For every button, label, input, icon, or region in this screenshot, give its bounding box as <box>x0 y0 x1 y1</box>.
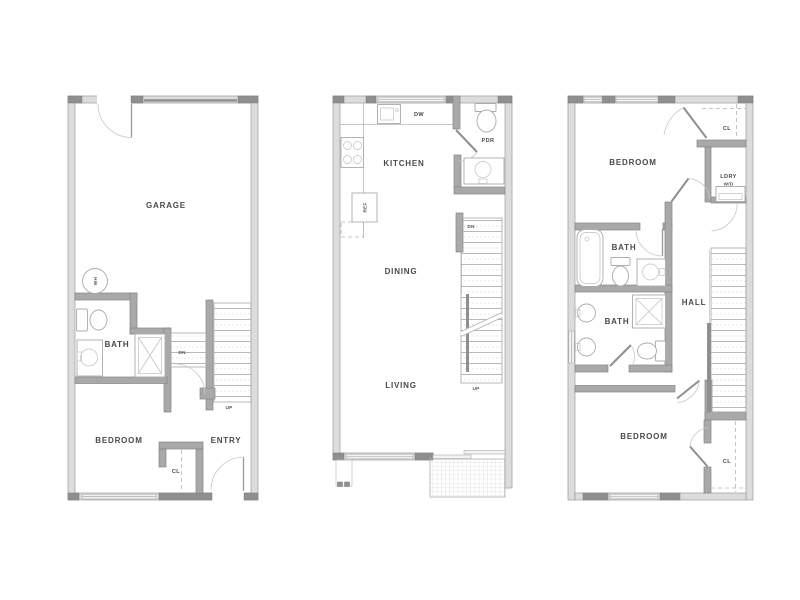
powder-room <box>453 96 505 194</box>
living-label: LIVING <box>385 381 416 390</box>
sink-vanity-upper-fixture <box>637 259 666 286</box>
garage-label: GARAGE <box>146 201 186 210</box>
water-heater: WH <box>83 269 108 294</box>
laundry-label: LDRY <box>720 174 737 180</box>
toilet-fixture <box>77 309 108 331</box>
bath-upper-label: BATH <box>612 243 637 252</box>
stairs-up-label: UP <box>225 405 233 411</box>
closet-upper-dashed <box>702 104 746 139</box>
closet-label: CL <box>172 469 180 475</box>
kitchen-sink <box>378 105 401 124</box>
stairs-down-label: DN <box>178 350 186 356</box>
water-heater-label: WH <box>93 276 99 285</box>
dishwasher-label: DW <box>414 112 424 118</box>
bath-label: BATH <box>105 340 130 349</box>
floor2-stairs <box>456 213 502 383</box>
cooktop <box>341 138 364 168</box>
entry-label: ENTRY <box>211 436 242 445</box>
hall-label: HALL <box>682 298 707 307</box>
powder-room-label: PDR <box>481 138 494 144</box>
dining-label: DINING <box>385 267 418 276</box>
bedroom-upper-label: BEDROOM <box>609 158 656 167</box>
stairs-up-label: UP <box>472 386 480 392</box>
floor2-plan: REF DW KITCHEN PDR DINING <box>333 96 512 497</box>
stairs-down-label: DN <box>467 224 475 230</box>
sliding-door <box>433 455 471 459</box>
toilet-lower-fixture <box>638 341 666 361</box>
kitchen-label: KITCHEN <box>383 159 424 168</box>
closet-lower-label: CL <box>723 459 731 465</box>
floorplan-canvas: WH GARAGE BATH BEDR <box>0 0 800 600</box>
floor3-plan: BEDROOM CL LDRY W/D BATH BATH HALL BEDRO… <box>568 96 753 500</box>
refrigerator-label: REF <box>363 202 369 212</box>
washer-dryer-fixture <box>716 187 745 202</box>
floor1-plan: WH GARAGE BATH BEDR <box>68 96 258 502</box>
bedroom-label: BEDROOM <box>95 436 142 445</box>
toilet-upper-fixture <box>611 258 630 287</box>
washer-dryer-label: W/D <box>724 182 734 188</box>
sink-vanity-fixture <box>77 340 103 376</box>
closet-lower-dashed <box>711 421 746 492</box>
shower-lower-fixture <box>633 295 666 328</box>
deck <box>430 459 505 497</box>
floorplan-drawing: WH GARAGE BATH BEDR <box>0 0 800 600</box>
double-sinks-fixture <box>576 304 596 356</box>
floor3-stairs <box>707 248 746 412</box>
kitchen-counters: REF DW <box>340 103 453 238</box>
shower-fixture <box>135 334 165 377</box>
bathtub-fixture <box>577 230 603 287</box>
stoop <box>336 460 352 487</box>
bedroom-lower-label: BEDROOM <box>620 432 667 441</box>
closet-upper-label: CL <box>723 126 731 132</box>
sliding-door-panel <box>464 450 505 454</box>
bath-lower-label: BATH <box>605 317 630 326</box>
